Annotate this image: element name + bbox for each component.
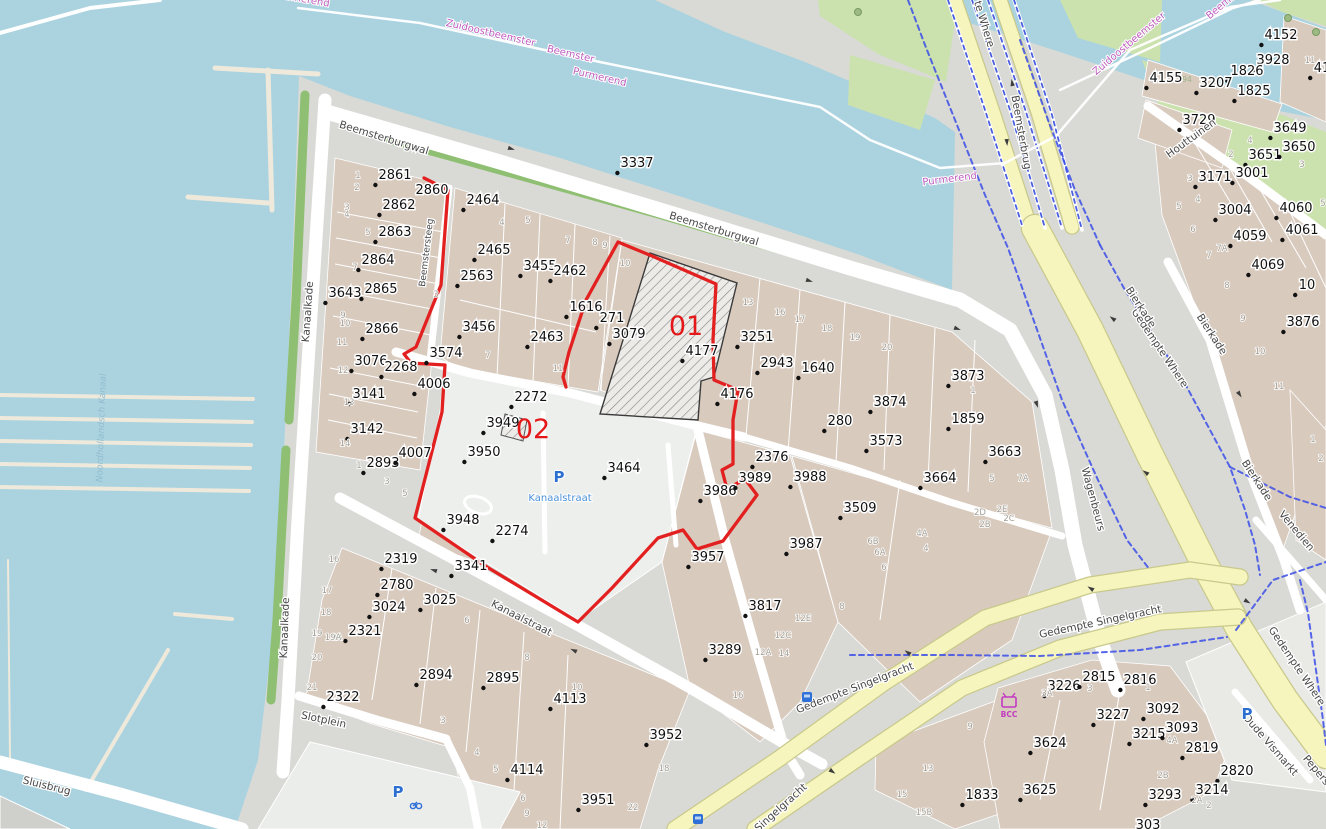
- parcel-dot: [424, 361, 428, 365]
- parcel-label: 3948: [446, 513, 479, 528]
- map-canvas[interactable]: 9494286128602862246428632864246534552462…: [0, 0, 1326, 829]
- house-number-label: 13: [344, 398, 355, 408]
- house-number-label: 2: [1228, 150, 1233, 160]
- house-number-label: 3: [1187, 174, 1192, 184]
- parcel-label: 3950: [467, 445, 500, 460]
- parcel-dot: [564, 315, 568, 319]
- parcel-dot: [733, 486, 737, 490]
- parcel-dot: [518, 274, 522, 278]
- parcel-dot: [946, 427, 950, 431]
- parcel-label: 4113: [553, 692, 586, 707]
- parcel-label: 4152: [1264, 28, 1297, 43]
- parcel-dot: [1028, 751, 1032, 755]
- parking-icon[interactable]: P: [1242, 705, 1253, 723]
- parcel-dot: [838, 516, 842, 520]
- tree-icon: [855, 9, 862, 16]
- parcel-dot: [1143, 803, 1147, 807]
- parcel-label: 1833: [965, 788, 998, 803]
- house-number-label: 6: [520, 794, 525, 804]
- parcel-label: 3817: [748, 599, 781, 614]
- parcel-dot: [703, 658, 707, 662]
- parcel-label: 3664: [923, 471, 956, 486]
- parcel-label: 2563: [460, 269, 493, 284]
- parcel-dot: [472, 258, 476, 262]
- house-number-label: 2: [1206, 801, 1211, 811]
- parcel-label: 3025: [423, 593, 456, 608]
- bus-stop-icon: [693, 814, 703, 824]
- parcel-label: 3093: [1165, 721, 1198, 736]
- parcel-label: 3874: [873, 395, 906, 410]
- house-number-label: 4A: [1166, 736, 1177, 746]
- parcel-dot: [481, 431, 485, 435]
- parcel-label: 2819: [1185, 741, 1218, 756]
- parcel-label: 280: [828, 414, 853, 429]
- parcel-label: 2376: [755, 450, 788, 465]
- parcel-dot: [361, 471, 365, 475]
- parcel-label: 1825: [1237, 84, 1270, 99]
- parcel-label: 4155: [1149, 71, 1182, 86]
- house-number-label: 5: [989, 474, 994, 484]
- parcel-dot: [349, 369, 353, 373]
- parcel-dot: [1274, 216, 1278, 220]
- parcel-label: 4176: [720, 387, 753, 402]
- parcel-label: 2894: [419, 668, 452, 683]
- house-number-label: 2B: [979, 520, 990, 530]
- parcel-label: 3625: [1023, 783, 1056, 798]
- parcel-label: 3989: [738, 471, 771, 486]
- tree-icon: [1313, 29, 1320, 36]
- parcel-label: 3509: [843, 501, 876, 516]
- parcel-dot: [379, 567, 383, 571]
- parcel-dot: [367, 615, 371, 619]
- parcel-dot: [321, 705, 325, 709]
- parcel-label: 3663: [988, 445, 1021, 460]
- parcel-dot: [375, 593, 379, 597]
- house-number-label: 1: [970, 386, 975, 396]
- parcel-dot: [1144, 86, 1148, 90]
- house-number-label: 4: [344, 210, 349, 220]
- parcel-label: 2463: [530, 330, 563, 345]
- house-number-label: 4: [474, 748, 479, 758]
- house-number-label: 14: [779, 649, 790, 659]
- parcel-dot: [1177, 128, 1181, 132]
- house-number-label: 11: [553, 364, 564, 374]
- parcel-label: 1616: [569, 300, 602, 315]
- house-number-label: 10: [1255, 347, 1266, 357]
- parcel-label: 303: [1136, 818, 1161, 829]
- parcel-label: 2862: [382, 198, 415, 213]
- parcel-label: 3001: [1235, 166, 1268, 181]
- house-number-label: 18: [822, 324, 833, 334]
- house-number-label: 19A: [325, 633, 342, 643]
- parcel-dot: [1141, 717, 1145, 721]
- parcel-label: 4006: [417, 377, 450, 392]
- house-number-label: 2: [354, 183, 359, 193]
- parcel-dot: [1293, 293, 1297, 297]
- parcel-label: 2268: [384, 360, 417, 375]
- parcel-dot: [735, 345, 739, 349]
- parcel-dot: [946, 384, 950, 388]
- parcel-label: 3643: [328, 286, 361, 301]
- parcel-label: 41: [1314, 61, 1326, 76]
- parcel-label: 3289: [708, 643, 741, 658]
- parcel-dot: [788, 485, 792, 489]
- parcel-label: 3092: [1146, 702, 1179, 717]
- house-number-label: 12A: [755, 648, 772, 658]
- house-number-label: 2C: [1003, 514, 1014, 524]
- parcel-label: 2272: [514, 390, 547, 405]
- house-number-label: 2D: [974, 508, 986, 518]
- house-number-label: 20: [882, 343, 893, 353]
- house-number-label: 7A: [1216, 244, 1227, 254]
- house-number-label: 7: [352, 263, 357, 273]
- parcel-dot: [393, 461, 397, 465]
- parcel-dot: [960, 803, 964, 807]
- house-number-label: 13: [743, 298, 754, 308]
- parcel-dot: [1246, 273, 1250, 277]
- parcel-dot: [359, 297, 363, 301]
- parcel-label: 3207: [1199, 76, 1232, 91]
- map-svg[interactable]: 9494286128602862246428632864246534552462…: [0, 0, 1326, 829]
- parcel-dot: [323, 301, 327, 305]
- parcel-dot: [1277, 155, 1281, 159]
- parcel-dot: [698, 499, 702, 503]
- parcel-dot: [418, 608, 422, 612]
- house-number-label: 2: [1318, 454, 1323, 464]
- house-number-label: 8: [524, 653, 529, 663]
- house-number-label: 7: [485, 351, 490, 361]
- house-number-label: 22: [628, 803, 639, 813]
- parcel-label: 271: [600, 311, 625, 326]
- parcel-dot: [481, 686, 485, 690]
- parcel-label: 1640: [801, 361, 834, 376]
- parcel-label: 3988: [793, 470, 826, 485]
- parcel-label: 2866: [365, 322, 398, 337]
- parcel-label: 2274: [495, 524, 528, 539]
- parcel-label: 3341: [454, 559, 487, 574]
- parcel-label: 3227: [1096, 708, 1129, 723]
- parcel-label: 2322: [326, 690, 359, 705]
- house-number-label: 5: [1320, 199, 1325, 209]
- parcel-label: 3024: [372, 600, 405, 615]
- house-number-label: 2B: [1157, 771, 1168, 781]
- house-number-label: 3: [384, 477, 389, 487]
- parcel-label: 3876: [1286, 315, 1319, 330]
- parcel-dot: [1018, 798, 1022, 802]
- parcel-dot: [796, 376, 800, 380]
- parcel-dot: [548, 279, 552, 283]
- house-number-label: 12E: [795, 614, 811, 624]
- parcel-label: 4007: [398, 446, 431, 461]
- house-number-label: 4: [923, 544, 928, 554]
- parcel-dot: [360, 337, 364, 341]
- parcel-label: 2815: [1082, 670, 1115, 685]
- house-number-label: 8: [839, 602, 844, 612]
- parcel-dot: [615, 171, 619, 175]
- parcel-label: 2816: [1123, 673, 1156, 688]
- street-label: Kanaalkade: [278, 597, 292, 658]
- parcel-label: 2861: [378, 168, 411, 183]
- parcel-dot: [509, 405, 513, 409]
- parcel-label: 3949: [486, 416, 519, 431]
- house-number-label: 2A: [1191, 796, 1202, 806]
- house-number-label: 3: [1299, 160, 1304, 170]
- parcel-dot: [1180, 756, 1184, 760]
- house-number-label: 1: [356, 461, 361, 471]
- house-number-label: 7: [1206, 251, 1211, 261]
- parcel-dot: [1213, 218, 1217, 222]
- parcel-label: 3651: [1248, 148, 1281, 163]
- bcc-shop-label: BCC: [1001, 710, 1018, 719]
- parcel-dot: [750, 465, 754, 469]
- house-number-label: 17: [322, 586, 333, 596]
- parcel-dot: [379, 375, 383, 379]
- parcel-dot: [602, 476, 606, 480]
- parcel-label: 3957: [691, 550, 724, 565]
- house-number-label: 16: [775, 308, 786, 318]
- parcel-dot: [525, 345, 529, 349]
- parcel-dot: [594, 326, 598, 330]
- house-number-label: 3: [1087, 684, 1092, 694]
- parcel-label: 4114: [510, 763, 543, 778]
- parcel-dot: [1230, 181, 1234, 185]
- parcel-label: 3456: [462, 320, 495, 335]
- parcel-dot: [868, 410, 872, 414]
- house-number-label: 16: [733, 691, 744, 701]
- parcel-dot: [1091, 723, 1095, 727]
- house-number-label: 7A: [1017, 474, 1028, 484]
- house-number-label: 18: [659, 764, 670, 774]
- parcel-dot: [918, 486, 922, 490]
- parcel-dot: [1077, 685, 1081, 689]
- parcel-label: 4069: [1251, 258, 1284, 273]
- parcel-dot: [462, 460, 466, 464]
- parcel-dot: [576, 808, 580, 812]
- house-number-label: 12: [537, 821, 548, 829]
- house-number-label: 16: [329, 555, 340, 565]
- parcel-label: 3215: [1132, 727, 1165, 742]
- parcel-label: 1859: [951, 412, 984, 427]
- house-number-label: 1: [355, 171, 360, 181]
- house-number-label: 11: [1274, 382, 1285, 392]
- parcel-label: 3987: [789, 537, 822, 552]
- parcel-label: 2465: [477, 243, 510, 258]
- parcel-label: 3171: [1198, 170, 1231, 185]
- house-number-label: 19: [312, 629, 323, 639]
- parcel-label: 3079: [612, 327, 645, 342]
- parcel-label: 4059: [1233, 229, 1266, 244]
- parcel-label: 2820: [1220, 764, 1253, 779]
- parcel-label: 3873: [951, 369, 984, 384]
- parcel-dot: [373, 183, 377, 187]
- parcel-label: 3141: [352, 387, 385, 402]
- parcel-dot: [1228, 244, 1232, 248]
- house-number-label: 13: [923, 764, 934, 774]
- parking-icon[interactable]: P: [393, 783, 404, 801]
- house-number-label: 6A: [874, 548, 885, 558]
- parcel-label: 2780: [380, 578, 413, 593]
- parcel-label: 2860: [415, 183, 448, 198]
- parcel-label: 2864: [361, 253, 394, 268]
- parcel-label: 3986: [703, 484, 736, 499]
- house-number-label: 9: [967, 722, 972, 732]
- parcel-label: 10: [1299, 278, 1316, 293]
- parcel-dot: [1232, 99, 1236, 103]
- parcel-dot: [1160, 736, 1164, 740]
- parcel-label: 2943: [760, 356, 793, 371]
- parcel-dot: [686, 565, 690, 569]
- tree-icon: [1285, 15, 1292, 22]
- house-number-label: 4: [499, 218, 504, 228]
- parcel-label: 2895: [486, 671, 519, 686]
- selection-label-01: 01: [669, 311, 703, 342]
- house-number-label: 6: [1190, 225, 1195, 235]
- parcel-dot: [548, 707, 552, 711]
- parcel-dot: [1127, 742, 1131, 746]
- house-number-label: 5: [525, 216, 530, 226]
- house-number-label: 3: [440, 716, 445, 726]
- parcel-label: 3251: [740, 330, 773, 345]
- parcel-label: 3004: [1218, 203, 1251, 218]
- house-number-label: 7: [565, 236, 570, 246]
- house-number-label: 1: [1145, 683, 1150, 693]
- parcel-dot: [1268, 136, 1272, 140]
- bus-stop-icon: [802, 692, 812, 702]
- house-number-label: 15: [897, 790, 908, 800]
- house-number-label: 6: [881, 563, 886, 573]
- parcel-dot: [1118, 688, 1122, 692]
- house-number-label: 10: [620, 259, 631, 269]
- parking-icon[interactable]: P: [554, 468, 565, 486]
- parcel-label: 4061: [1285, 223, 1318, 238]
- parcel-dot: [1280, 238, 1284, 242]
- parcel-label: 3293: [1148, 788, 1181, 803]
- house-number-label: 5: [402, 489, 407, 499]
- parcel-dot: [680, 359, 684, 363]
- house-number-label: 12C: [775, 631, 792, 641]
- parcel-dot: [644, 743, 648, 747]
- house-number-label: 21: [307, 683, 318, 693]
- parcel-label: 4177: [685, 344, 718, 359]
- parcel-label: 3142: [350, 422, 383, 437]
- parcel-label: 4060: [1279, 201, 1312, 216]
- parcel-dot: [864, 449, 868, 453]
- house-number-label: 11: [1305, 56, 1316, 66]
- house-number-label: 5: [365, 228, 370, 238]
- parcel-dot: [607, 342, 611, 346]
- house-number-label: 20: [312, 653, 323, 663]
- house-number-label: 12: [338, 366, 349, 376]
- parcel-dot: [449, 574, 453, 578]
- parcel-label: 3464: [607, 461, 640, 476]
- house-number-label: 6B: [867, 537, 878, 547]
- house-number-label: 17: [795, 315, 806, 325]
- parcel-dot: [490, 539, 494, 543]
- parcel-dot: [1193, 185, 1197, 189]
- parcel-label: 3952: [649, 728, 682, 743]
- parcel-dot: [715, 402, 719, 406]
- house-number-label: 9: [602, 241, 607, 251]
- parcel-label: 3951: [581, 793, 614, 808]
- house-number-label: 9: [1240, 314, 1245, 324]
- parcel-dot: [412, 392, 416, 396]
- parcel-dot: [1259, 43, 1263, 47]
- parcel-dot: [373, 240, 377, 244]
- parcel-label: 3624: [1033, 736, 1066, 751]
- parcel-dot: [755, 371, 759, 375]
- house-number-label: 18: [321, 608, 332, 618]
- parcel-label: 3574: [429, 346, 462, 361]
- parcel-label: 2462: [553, 264, 586, 279]
- parcel-label: 3573: [869, 434, 902, 449]
- parcel-label: 2865: [364, 282, 397, 297]
- parcel-dot: [455, 284, 459, 288]
- parcel-dot: [441, 528, 445, 532]
- parcel-label: 2319: [384, 552, 417, 567]
- parcel-dot: [822, 429, 826, 433]
- house-number-label: 1: [1310, 435, 1315, 445]
- svg-text:94: 94: [1182, 75, 1192, 84]
- house-number-label: 15B: [916, 808, 933, 818]
- parcel-dot: [343, 639, 347, 643]
- parcel-label: 2464: [466, 193, 499, 208]
- house-number-label: 4: [1247, 136, 1252, 146]
- house-number-label: 11: [337, 338, 348, 348]
- house-number-label: 3: [433, 290, 438, 300]
- parcel-label: 3455: [523, 259, 556, 274]
- parcel-dot: [743, 614, 747, 618]
- parking-name-label: Kanaalstraat: [528, 493, 591, 504]
- house-number-label: 19: [850, 333, 861, 343]
- house-number-label: 9: [524, 809, 529, 819]
- parcel-dot: [1281, 330, 1285, 334]
- parcel-label: 1826: [1230, 64, 1263, 79]
- house-number-label: 10: [340, 319, 351, 329]
- house-number-label: 4: [1195, 195, 1200, 205]
- parcel-label: 2321: [348, 624, 381, 639]
- house-number-label: 5: [1176, 202, 1181, 212]
- house-number-label: 3A: [1041, 689, 1052, 699]
- parcel-dot: [505, 778, 509, 782]
- house-number-label: 4A: [916, 529, 927, 539]
- house-number-label: 5: [493, 765, 498, 775]
- parcel-label: 3076: [354, 354, 387, 369]
- parcel-label: 3649: [1273, 121, 1306, 136]
- parcel-dot: [461, 208, 465, 212]
- selection-label-02: 02: [516, 414, 550, 445]
- parcel-dot: [414, 683, 418, 687]
- house-number-label: 8: [1224, 281, 1229, 291]
- house-number-label: 6: [464, 616, 469, 626]
- parcel-dot: [1308, 76, 1312, 80]
- house-number-label: 14: [340, 439, 351, 449]
- parcel-dot: [377, 213, 381, 217]
- parcel-label: 2863: [378, 225, 411, 240]
- parcel-dot: [1194, 91, 1198, 95]
- parcel-dot: [457, 335, 461, 339]
- parcel-dot: [983, 460, 987, 464]
- parcel-dot: [784, 552, 788, 556]
- house-number-label: 8: [592, 238, 597, 248]
- parcel-label: 3337: [620, 156, 653, 171]
- parcel-label: 3650: [1282, 140, 1315, 155]
- house-number-label: 10: [572, 683, 583, 693]
